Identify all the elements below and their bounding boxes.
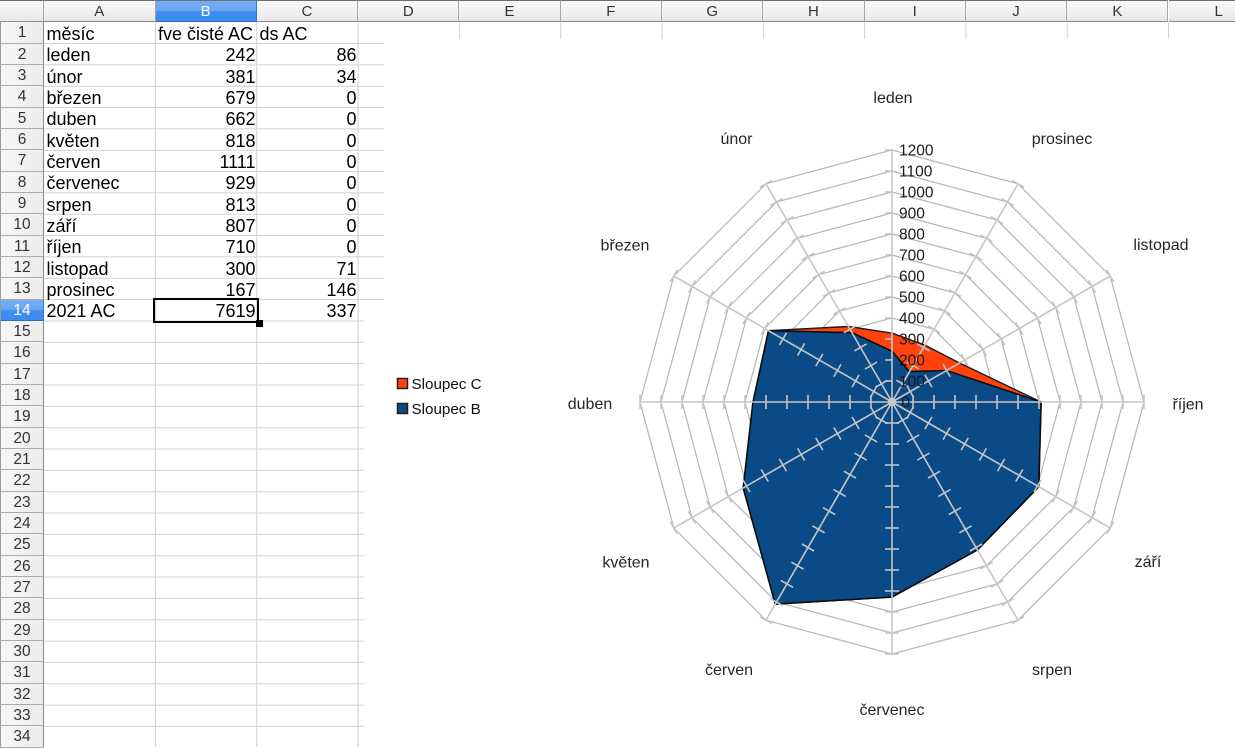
svg-text:1200: 1200: [899, 143, 934, 160]
svg-text:únor: únor: [720, 131, 753, 148]
svg-text:1000: 1000: [899, 185, 934, 202]
svg-text:900: 900: [899, 206, 925, 223]
svg-text:Sloupec C: Sloupec C: [412, 376, 482, 393]
svg-text:srpen: srpen: [1032, 662, 1072, 679]
svg-text:400: 400: [899, 311, 925, 328]
svg-text:listopad: listopad: [1133, 237, 1188, 254]
svg-text:600: 600: [899, 269, 925, 286]
svg-text:500: 500: [899, 290, 925, 307]
svg-text:květen: květen: [602, 555, 649, 572]
svg-text:200: 200: [899, 353, 925, 370]
svg-text:červen: červen: [705, 662, 753, 679]
svg-text:700: 700: [899, 248, 925, 265]
svg-text:100: 100: [899, 374, 925, 391]
svg-text:prosinec: prosinec: [1032, 131, 1092, 148]
svg-text:Sloupec B: Sloupec B: [412, 401, 481, 418]
svg-text:březen: březen: [601, 238, 650, 255]
svg-text:1100: 1100: [899, 164, 933, 181]
svg-text:říjen: říjen: [1172, 397, 1203, 414]
svg-text:800: 800: [899, 227, 925, 244]
svg-text:300: 300: [899, 332, 925, 349]
svg-text:leden: leden: [873, 90, 912, 107]
svg-text:0: 0: [902, 395, 911, 412]
svg-text:červenec: červenec: [860, 702, 925, 719]
svg-text:duben: duben: [568, 396, 613, 413]
svg-text:září: září: [1135, 554, 1162, 571]
